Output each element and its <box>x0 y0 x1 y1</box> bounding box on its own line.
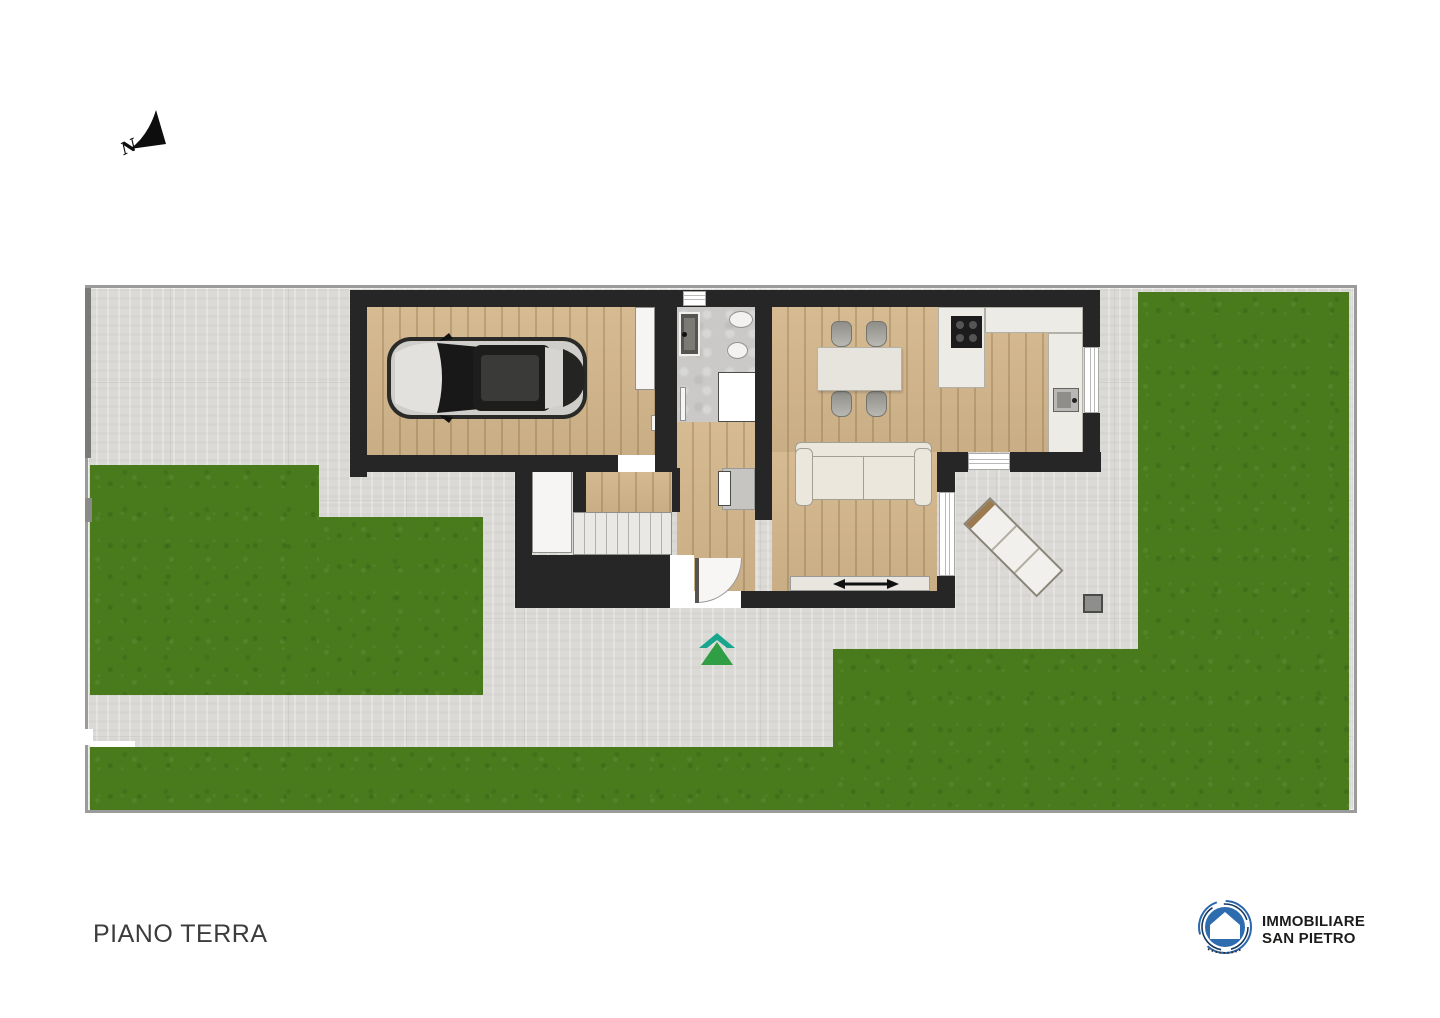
garage-hall-door-opening <box>618 455 655 472</box>
dining-table <box>817 347 902 391</box>
sofa-armrest <box>795 448 813 506</box>
bathroom-window <box>683 291 706 306</box>
entrance-door-leaf <box>695 558 699 603</box>
wall-stairs-left <box>515 455 532 608</box>
grass-area-right-upper <box>1138 292 1349 649</box>
gate-marker <box>85 498 92 522</box>
closet <box>532 468 572 553</box>
wall-right-lower <box>1083 413 1100 472</box>
lounge-chair-seam <box>1014 548 1039 573</box>
burner <box>969 334 977 342</box>
burner <box>969 321 977 329</box>
entry-cabinet <box>718 471 731 506</box>
bathroom-radiator <box>680 387 686 421</box>
wall-garage-bathroom <box>655 307 677 472</box>
sofa-cushion <box>812 456 864 500</box>
burner <box>956 334 964 342</box>
house-in-circle-logo-icon <box>1196 899 1254 961</box>
fence-segment <box>85 288 91 458</box>
shower <box>679 312 700 356</box>
kitchen-right-window <box>1084 347 1099 413</box>
garage-shelf <box>635 307 655 390</box>
wall-bottom-left <box>515 591 695 608</box>
grass-area-right-lower <box>833 649 1349 810</box>
wall-hall-stub <box>672 468 680 512</box>
lounge-chair-seam <box>991 525 1016 550</box>
living-room-window <box>939 492 955 576</box>
sink-basin <box>1057 392 1071 408</box>
shower-handle <box>682 332 687 337</box>
sofa-armrest <box>914 448 932 506</box>
agency-logo: IMMOBILIARE SAN PIETRO <box>1196 899 1365 961</box>
kitchen-bottom-window <box>968 453 1010 470</box>
sofa <box>795 442 932 508</box>
stairs <box>573 512 672 555</box>
double-headed-arrow-icon <box>833 579 899 589</box>
entrance-arrow-icon <box>698 633 736 669</box>
dining-chair <box>866 321 887 347</box>
sofa-cushion <box>863 456 915 500</box>
grass-area-left-lower <box>319 517 483 695</box>
dining-chair <box>831 321 852 347</box>
wall-bathroom-living <box>755 307 772 520</box>
wall-kitchen-bottom-a <box>955 452 968 472</box>
wall-top <box>350 290 1100 307</box>
logo-line1: IMMOBILIARE <box>1262 913 1365 930</box>
wall-living-right-upper <box>937 452 955 492</box>
car-top-view <box>385 333 590 423</box>
wall-stairs-stub <box>573 468 586 512</box>
utility-box <box>1083 594 1103 613</box>
faucet <box>1072 398 1077 403</box>
sliding-door <box>790 576 930 591</box>
grass-area-left-upper <box>90 465 319 695</box>
floor-plan-page: N <box>0 0 1440 1018</box>
dining-chair <box>866 391 887 417</box>
lounge-chair-headrest <box>966 500 995 529</box>
logo-line2: SAN PIETRO <box>1262 930 1365 947</box>
burner <box>956 321 964 329</box>
dining-chair <box>831 391 852 417</box>
page-title: PIANO TERRA <box>93 920 268 949</box>
washbasin <box>729 311 753 328</box>
wall-garage-left <box>350 290 367 477</box>
wall-right-upper <box>1083 290 1100 347</box>
entrance-door-recess <box>670 555 694 608</box>
bathroom-door-swing-area <box>718 372 757 422</box>
hallway-floor <box>586 468 672 512</box>
cooktop <box>951 316 982 348</box>
gate-threshold <box>90 741 135 747</box>
kitchen-sink <box>1053 388 1079 412</box>
wall-living-right-lower <box>937 576 955 608</box>
kitchen-counter-top <box>985 307 1083 333</box>
toilet <box>727 342 748 359</box>
wall-bottom-right <box>740 591 955 608</box>
north-arrow-icon: N <box>112 104 176 162</box>
property-plot <box>85 285 1357 813</box>
lounge-chair <box>963 497 1063 597</box>
